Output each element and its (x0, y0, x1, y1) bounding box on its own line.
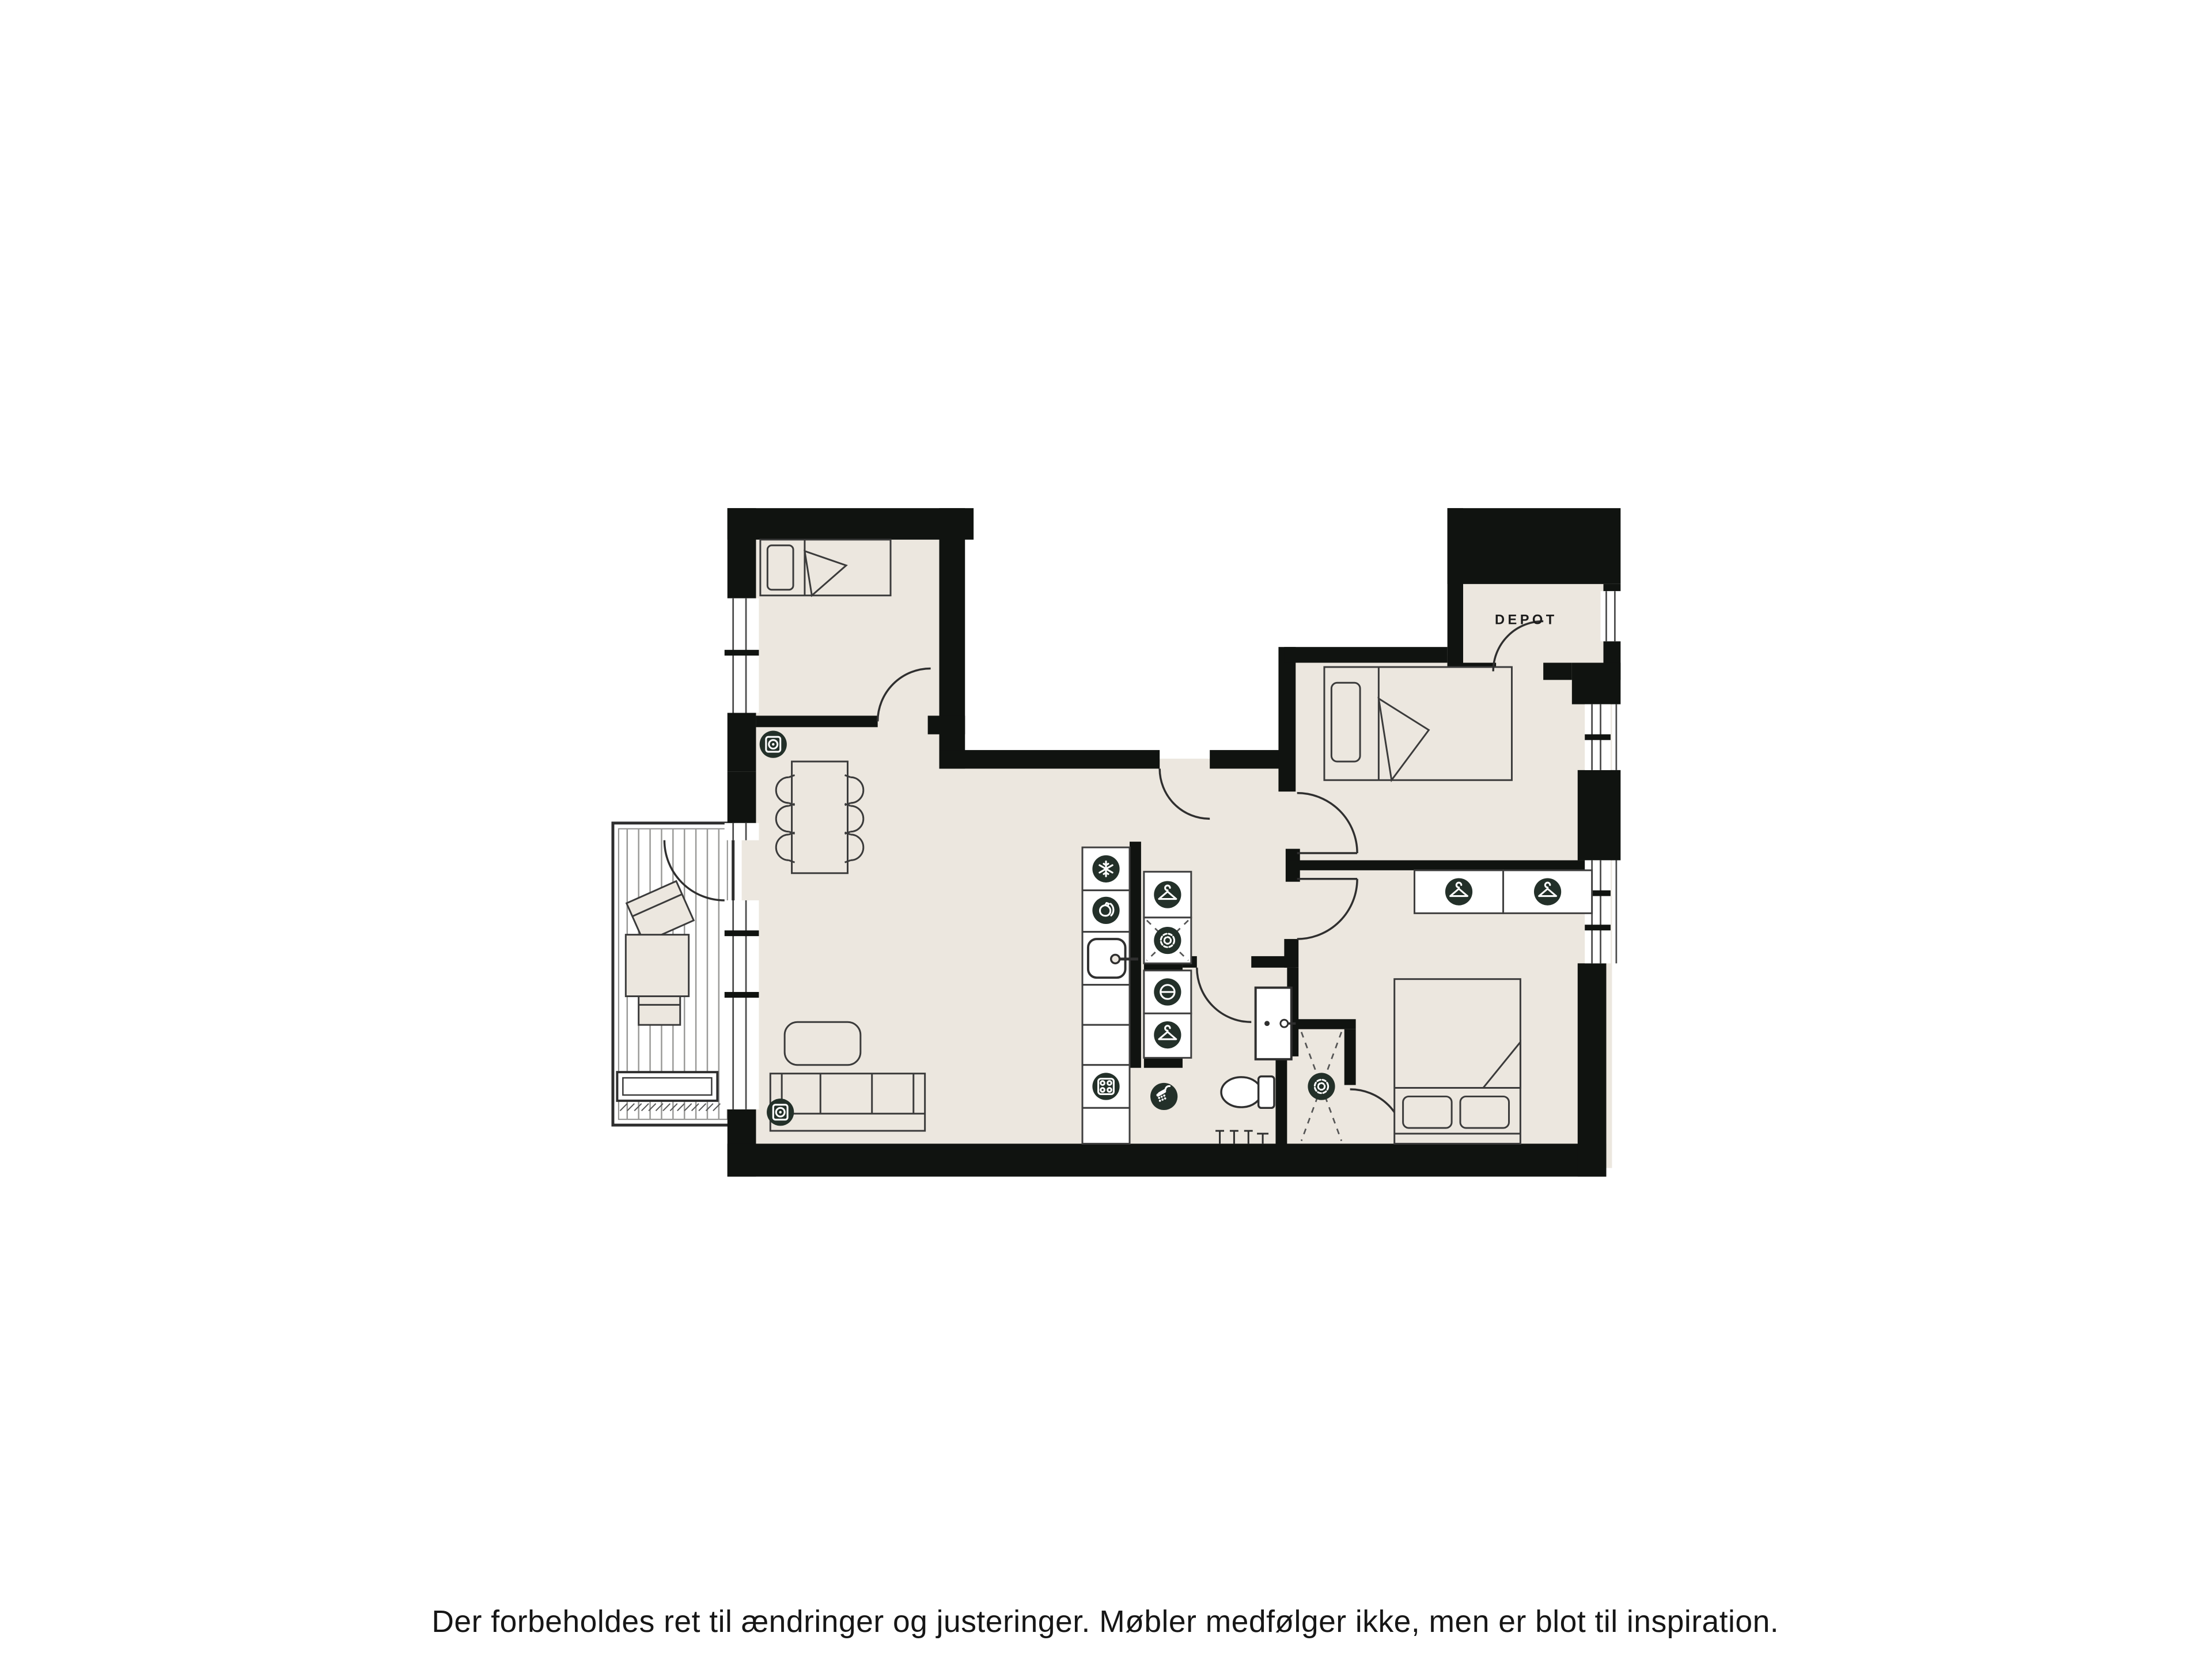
stove-icon (1092, 1073, 1119, 1100)
balcony-chair (639, 996, 680, 1025)
depot-window (1601, 591, 1624, 641)
fridge-icon (1092, 897, 1119, 924)
planter-box (617, 1072, 717, 1101)
balcony (613, 823, 733, 1125)
depot-room: DEPOT (1495, 612, 1558, 627)
wardrobe-icon (1154, 881, 1181, 908)
double-bed (1395, 979, 1521, 1144)
wardrobe-icon (1154, 1021, 1181, 1048)
coffee-table (785, 1022, 861, 1065)
utility-panel-icon (767, 1099, 794, 1126)
sofa (770, 1074, 925, 1131)
dryer-icon (1154, 978, 1181, 1005)
wardrobe-icon (1534, 878, 1561, 905)
ventilation-icon (1154, 927, 1181, 954)
bedroom1-window (725, 599, 759, 713)
balcony-table (626, 935, 688, 997)
toilet (1221, 1077, 1274, 1108)
depot-label: DEPOT (1495, 612, 1558, 627)
shower-drain-icon (1308, 1073, 1335, 1100)
single-bed (760, 540, 891, 596)
wardrobe-icon (1445, 878, 1472, 905)
floorplan-page: DEPOT Der forbeholdes ret til ændringer … (0, 0, 2212, 1659)
shower-icon (1150, 1083, 1177, 1110)
disclaimer-text: Der forbeholdes ret til ændringer og jus… (431, 1605, 1779, 1639)
freezer-icon (1092, 855, 1119, 882)
washbasin-vanity (1256, 988, 1296, 1059)
utility-panel-icon (760, 731, 787, 758)
single-bed (1324, 667, 1512, 780)
floorplan-svg: DEPOT Der forbeholdes ret til ændringer … (0, 0, 2212, 1659)
